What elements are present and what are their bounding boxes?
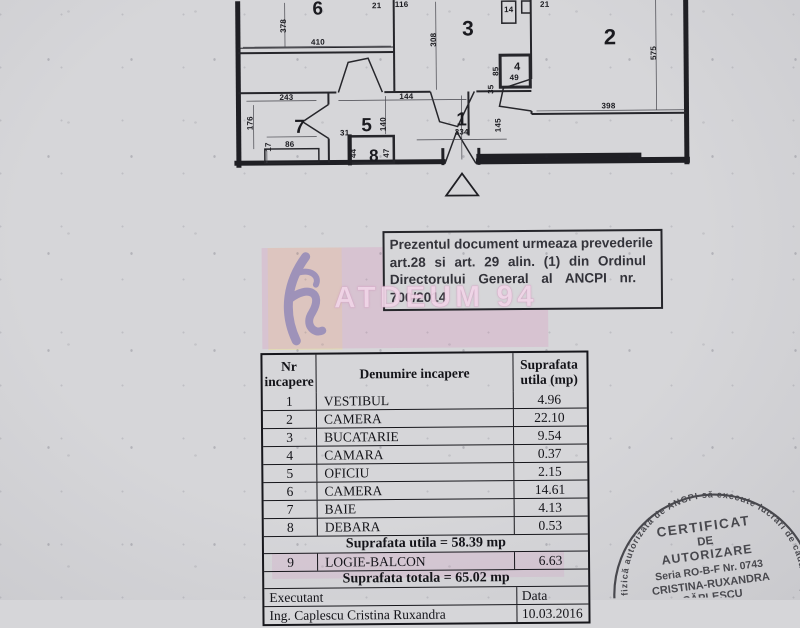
room-number-8: 8: [369, 146, 379, 165]
executant-name: Ing. Caplescu Cristina Ruxandra: [264, 605, 517, 624]
cell-nr: 3: [263, 429, 317, 446]
cell-nr: 4: [263, 447, 317, 464]
cell-nr: 1: [263, 393, 317, 410]
executant-date: 10.03.2016: [517, 605, 588, 623]
table-row: 9 LOGIE-BALCON 6.63: [264, 551, 588, 572]
dimension-label: 35: [486, 84, 495, 94]
cell-area: 9.54: [514, 427, 585, 445]
door-swing: [302, 105, 328, 139]
wall: [328, 93, 329, 163]
cell-nr: 2: [263, 411, 317, 428]
wall: [238, 52, 394, 53]
dimension-label: 243: [279, 93, 293, 102]
door-swing: [499, 79, 531, 111]
executant-header-row: Executant Data: [264, 586, 588, 607]
header-suprafata: Suprafata utila (mp): [513, 353, 584, 392]
cell-nr: 6: [263, 483, 317, 500]
cell-name: DEBARA: [318, 517, 515, 536]
dimension-label: 398: [601, 101, 615, 110]
company-logo-watermark: [268, 250, 341, 351]
room-number-6: 6: [312, 0, 323, 20]
wall: [479, 155, 639, 156]
notice-line: art.28 si art. 29 alin. (1) din Ordinul: [390, 251, 656, 271]
table-row: 3BUCATARIE9.54: [263, 426, 587, 447]
table-rows: 1VESTIBUL4.962CAMERA22.103BUCATARIE9.544…: [263, 391, 588, 537]
wall: [686, 0, 687, 162]
dimension-label: 14: [504, 5, 514, 14]
cell-name: BUCATARIE: [317, 427, 514, 446]
dimension-label: 575: [649, 46, 658, 60]
table-row: 4CAMARA0.37: [263, 444, 587, 465]
header-nr: Nr incapere: [262, 355, 316, 393]
dimension-label: 140: [379, 117, 388, 131]
dimension-label: 410: [311, 38, 325, 47]
dimension-label: 308: [429, 32, 438, 46]
room-number-4: 4: [514, 61, 521, 73]
table-header-row: Nr incapere Denumire incapere Suprafata …: [262, 353, 586, 394]
dimension-label: 334: [455, 127, 469, 136]
wall: [394, 0, 395, 92]
room-area-table: Nr incapere Denumire incapere Suprafata …: [260, 351, 590, 627]
room-number-3: 3: [462, 17, 474, 40]
dimension-label: 85: [491, 66, 500, 76]
plan-dimension-labels: 3784102111630814215753988549352431761441…: [245, 0, 659, 159]
wall: [479, 160, 687, 162]
cell-name: VESTIBUL: [317, 391, 514, 410]
dimension-label: 47: [382, 148, 391, 158]
company-watermark-text: ATDEUM 94: [334, 280, 538, 316]
cell-area: 22.10: [514, 409, 585, 427]
dimension-label: 44: [349, 148, 358, 158]
table-row: 8DEBARA0.53: [264, 516, 588, 537]
dimension-label: 21: [540, 0, 550, 9]
dimension-label: 31: [340, 128, 350, 137]
cell-area: 4.96: [514, 391, 585, 409]
notice-line: Prezentul document urmeaza prevederile: [389, 234, 655, 254]
cell-name: CAMERA: [317, 481, 514, 500]
room-number-2: 2: [604, 24, 616, 49]
dimension-label: 176: [246, 116, 255, 130]
cell-name: BAIE: [318, 499, 515, 518]
cell-nr: 7: [264, 501, 318, 518]
cell-nr: 8: [264, 519, 318, 536]
room-number-5: 5: [361, 115, 372, 136]
dimension-label: 116: [395, 0, 409, 9]
dimension-label: 49: [510, 73, 520, 82]
cell-nr: 9: [264, 554, 318, 571]
scanned-document: 63247518 3784102111630814215753988549352…: [0, 0, 800, 603]
table-row: 5OFICIU2.15: [263, 462, 587, 483]
header-denumire: Denumire incapere: [316, 353, 513, 393]
cell-name: CAMERA: [317, 409, 514, 428]
cell-name: LOGIE-BALCON: [318, 552, 515, 571]
room-number-7: 7: [294, 117, 305, 138]
dimension-label: 86: [285, 140, 295, 149]
table-row: 1VESTIBUL4.96: [263, 391, 587, 411]
dimension-label: 17: [264, 142, 273, 152]
floor-plan: 63247518 3784102111630814215753988549352…: [0, 0, 799, 213]
authorization-stamp: fizică autorizată de ANCPI să execute lu…: [561, 452, 800, 599]
dimension-label: 144: [399, 92, 413, 101]
stamp-center-text: CERTIFICAT DE AUTORIZARE Seria RO-B-F Nr…: [644, 511, 773, 598]
executant-row: Ing. Caplescu Cristina Ruxandra 10.03.20…: [264, 604, 588, 625]
table-row: 7BAIE4.13: [264, 498, 588, 519]
dimension-label: 145: [494, 118, 503, 132]
wall: [532, 113, 687, 114]
executant-label: Executant: [264, 587, 517, 606]
door-swing: [338, 58, 382, 92]
table-row: 6CAMERA14.61: [263, 480, 587, 501]
dimension-label: 21: [372, 1, 382, 10]
dimension-label: 378: [279, 19, 288, 33]
cell-name: OFICIU: [317, 463, 514, 482]
table-row: 2CAMERA22.10: [263, 408, 587, 429]
wall: [238, 1, 239, 165]
cell-nr: 5: [263, 465, 317, 482]
shaft: [522, 1, 531, 13]
cell-name: CAMARA: [317, 445, 514, 464]
entrance-arrow-icon: [446, 173, 478, 195]
